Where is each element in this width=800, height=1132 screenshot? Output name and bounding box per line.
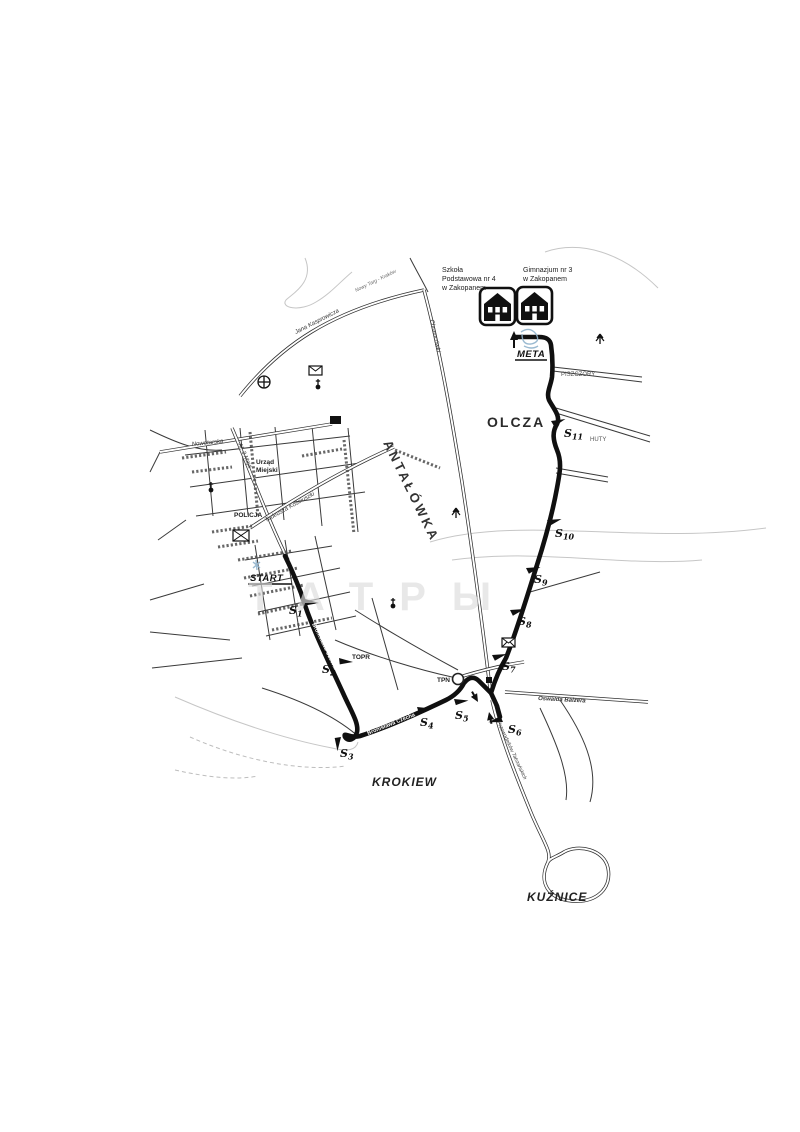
tree-icon: [596, 334, 604, 344]
checkpoint-s8: S8: [518, 615, 532, 630]
direction-arrow-down: [469, 690, 481, 704]
meta-label: META: [517, 349, 545, 360]
school-right-label-line1: Gimnazjum nr 3: [523, 267, 573, 274]
checkpoint-s6: S6: [508, 723, 522, 738]
sketch-contours: [175, 248, 766, 779]
school-building-right-icon: [517, 287, 552, 324]
place-policja: POLICJA: [234, 512, 262, 519]
place-urzad-line1: Urząd: [256, 459, 274, 466]
place-urzad-line2: Miejski: [256, 467, 278, 474]
street-kasprowicza: Jana Kasprowicza: [293, 308, 341, 336]
black-box-icon: [330, 416, 341, 424]
school-building-left-icon: [480, 288, 515, 325]
school-left-label-line3: w Zakopanem: [441, 285, 486, 292]
roundabout-icon: [453, 674, 464, 685]
watermark-text: ТАТРЫ: [248, 575, 517, 619]
race-route: [285, 331, 560, 740]
checkpoint-s11: S11: [564, 427, 583, 442]
hatched-box-icon: [233, 530, 249, 541]
place-piszczory: PISZCZORY: [561, 372, 595, 378]
street-kosciuszki: Tadeusza Kościuszki: [264, 491, 316, 524]
place-huty: HUTY: [590, 437, 606, 443]
place-tpn: TPN: [437, 677, 450, 684]
checkpoint-s10: S10: [555, 527, 575, 542]
street-balzera: Oswalda Balzera: [538, 696, 587, 705]
school-right-label-line2: w Zakopanem: [522, 276, 567, 283]
area-antalowka: ANTAŁÓWKA: [380, 438, 442, 545]
school-left-label-line2: Podstawowa nr 4: [442, 276, 496, 283]
street-nowytarg: Nowy Targ - Kraków: [354, 269, 397, 294]
place-topr: TOPR: [352, 654, 370, 661]
chapel-icon: [316, 379, 321, 389]
map-canvas: Szkoła Podstawowa nr 4 w Zakopanem Gimna…: [0, 0, 800, 1132]
tree-icon: [452, 508, 460, 518]
area-krokiew: KROKIEW: [372, 775, 438, 789]
checkpoint-s9: S9: [534, 573, 548, 588]
school-left-label-line1: Szkoła: [442, 267, 463, 274]
scanned-race-map-page: Szkoła Podstawowa nr 4 w Zakopanem Gimna…: [0, 0, 800, 1132]
checkpoint-s5: S5: [455, 709, 469, 724]
black-square-icon: [486, 677, 492, 683]
chapel-icon: [209, 482, 214, 492]
meta-arrow: [510, 331, 518, 348]
street-nowotarska: Nowotarska: [192, 439, 225, 448]
checkpoint-s4: S4: [420, 716, 434, 731]
area-kuznice: KUŹNICE: [527, 889, 587, 904]
post-envelope-icon: [309, 366, 322, 375]
cross-circle-icon: [258, 376, 270, 388]
post-envelope-icon: [502, 638, 515, 647]
area-olcza: OLCZA: [487, 414, 545, 430]
street-chramcowki: Chramcówki: [428, 319, 441, 353]
street-czecha-lower: Bronisława Czecha: [367, 712, 417, 737]
